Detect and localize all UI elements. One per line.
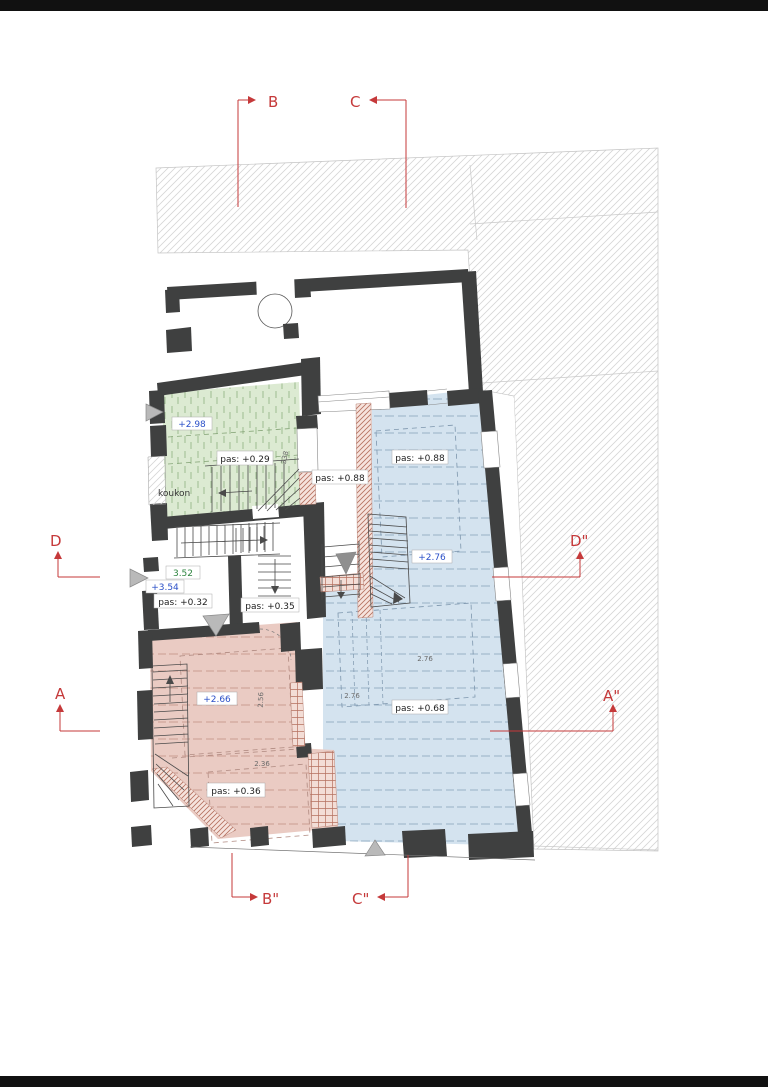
window-green-room bbox=[297, 428, 318, 472]
marker-a-prime: A" bbox=[603, 687, 620, 705]
marker-d-prime: D" bbox=[570, 532, 588, 550]
label-hall2-pas: pas: +0.35 bbox=[245, 602, 294, 612]
round-column bbox=[258, 294, 292, 328]
marker-b: B bbox=[268, 93, 278, 111]
section-line-b-prime bbox=[232, 853, 250, 897]
label-blue-pas-lower: pas: +0.68 bbox=[395, 704, 445, 714]
marker-c: C bbox=[350, 93, 360, 111]
label-green-name: koukon bbox=[158, 489, 190, 499]
label-hall-level: +3.54 bbox=[151, 583, 179, 593]
marker-a: A bbox=[55, 685, 66, 703]
label-pink-dim-v: 2.56 bbox=[257, 691, 266, 707]
label-blue-pas-upper: pas: +0.88 bbox=[395, 454, 445, 464]
label-corridor-pas: pas: +0.88 bbox=[315, 474, 365, 484]
scan-border-top bbox=[0, 0, 768, 11]
column-block bbox=[283, 323, 299, 339]
scan-border-bottom bbox=[0, 1076, 768, 1087]
marker-b-prime: B" bbox=[262, 890, 279, 908]
section-line-c-prime bbox=[385, 855, 408, 897]
section-line-d bbox=[58, 559, 100, 577]
label-pink-pas: pas: +0.36 bbox=[211, 787, 261, 797]
label-blue-dim-a: 2.76 bbox=[417, 655, 433, 663]
label-blue-dim-b: 2.76 bbox=[344, 692, 360, 700]
section-line-a bbox=[60, 712, 100, 731]
label-green-pas: pas: +0.29 bbox=[220, 455, 270, 465]
marker-d: D bbox=[50, 532, 62, 550]
label-hall-pas: pas: +0.32 bbox=[158, 598, 207, 608]
label-green-level: +2.98 bbox=[178, 420, 206, 430]
label-blue-level: +2.76 bbox=[418, 553, 446, 563]
marker-c-prime: C" bbox=[352, 890, 369, 908]
label-hall-height: 3.52 bbox=[173, 569, 193, 579]
floor-plan-canvas: B C D D" A A" B" C" +2.98 pas: +0.29 kou… bbox=[0, 0, 768, 1087]
label-pink-level: +2.66 bbox=[203, 695, 231, 705]
label-pink-dim: 2.36 bbox=[254, 760, 270, 768]
drawing-sheet: B C D D" A A" B" C" +2.98 pas: +0.29 kou… bbox=[0, 0, 768, 1087]
